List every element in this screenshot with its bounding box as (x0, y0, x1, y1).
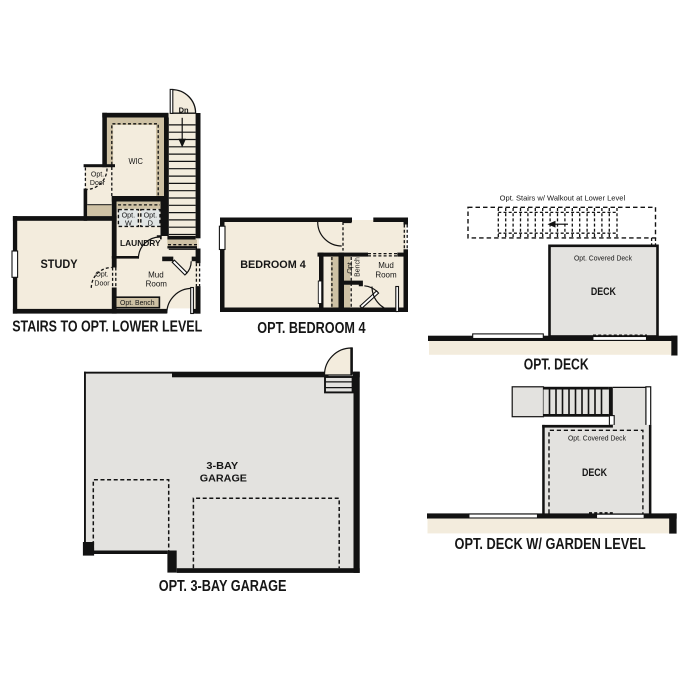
svg-text:Door: Door (94, 281, 110, 288)
svg-text:OPT. DECK W/ GARDEN LEVEL: OPT. DECK W/ GARDEN LEVEL (455, 536, 646, 553)
svg-text:Opt.: Opt. (95, 272, 108, 279)
svg-text:OPT. 3-BAY GARAGE: OPT. 3-BAY GARAGE (159, 578, 287, 595)
svg-text:Mud: Mud (378, 261, 394, 270)
svg-text:OPT. DECK: OPT. DECK (524, 356, 589, 373)
svg-text:W: W (125, 218, 132, 227)
svg-text:Room: Room (146, 280, 168, 289)
svg-text:Bench: Bench (354, 257, 361, 277)
svg-text:Opt. Covered Deck: Opt. Covered Deck (568, 434, 626, 443)
svg-text:Opt.: Opt. (347, 260, 354, 273)
svg-text:Room: Room (375, 270, 397, 279)
svg-text:STAIRS TO OPT. LOWER LEVEL: STAIRS TO OPT. LOWER LEVEL (12, 319, 202, 336)
svg-text:DECK: DECK (591, 286, 616, 298)
svg-text:3-BAY: 3-BAY (206, 461, 238, 472)
svg-text:WIC: WIC (128, 157, 143, 166)
svg-text:Door: Door (90, 180, 106, 187)
svg-text:Opt.: Opt. (91, 172, 104, 179)
svg-text:Dn: Dn (179, 106, 189, 115)
svg-text:GARAGE: GARAGE (200, 474, 248, 485)
svg-text:BEDROOM 4: BEDROOM 4 (240, 259, 306, 271)
svg-text:Mud: Mud (148, 270, 164, 279)
svg-text:OPT. BEDROOM 4: OPT. BEDROOM 4 (257, 320, 366, 337)
svg-text:STUDY: STUDY (41, 259, 78, 271)
svg-text:DECK: DECK (582, 467, 607, 479)
svg-text:Opt. Bench: Opt. Bench (120, 298, 155, 307)
svg-text:Opt. Stairs w/ Walkout at Lowe: Opt. Stairs w/ Walkout at Lower Level (500, 194, 626, 203)
svg-text:Opt. Covered Deck: Opt. Covered Deck (574, 254, 632, 263)
svg-text:LAUNDRY: LAUNDRY (120, 238, 161, 248)
svg-text:D: D (148, 218, 153, 227)
